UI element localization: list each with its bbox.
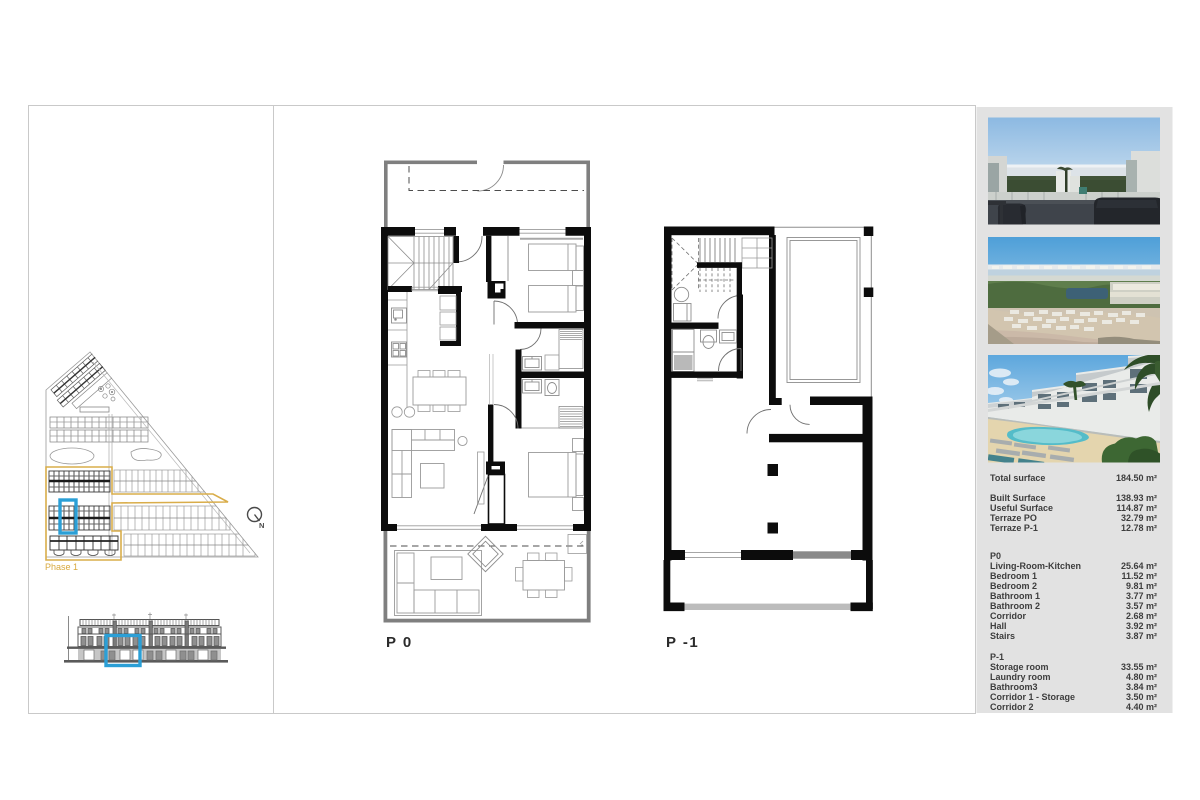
svg-text:3.84 m²: 3.84 m² [1126, 682, 1157, 692]
svg-text:Bathroom 1: Bathroom 1 [990, 591, 1040, 601]
svg-text:Living-Room-Kitchen: Living-Room-Kitchen [990, 561, 1081, 571]
svg-text:3.57 m²: 3.57 m² [1126, 601, 1157, 611]
svg-text:P 0: P 0 [386, 634, 413, 651]
svg-text:Total surface: Total surface [990, 473, 1045, 483]
svg-text:Corridor 2: Corridor 2 [990, 702, 1034, 712]
svg-text:Bedroom 2: Bedroom 2 [990, 581, 1037, 591]
svg-text:4.40 m²: 4.40 m² [1126, 702, 1157, 712]
svg-text:Bedroom 1: Bedroom 1 [990, 571, 1037, 581]
svg-text:Bathroom3: Bathroom3 [990, 682, 1038, 692]
svg-text:11.52 m²: 11.52 m² [1121, 571, 1157, 581]
svg-text:Bathroom 2: Bathroom 2 [990, 601, 1040, 611]
svg-text:32.79 m²: 32.79 m² [1121, 513, 1157, 523]
svg-text:4.80 m²: 4.80 m² [1126, 672, 1157, 682]
svg-text:Storage room: Storage room [990, 662, 1049, 672]
svg-text:P-1: P-1 [990, 652, 1004, 662]
svg-text:25.64 m²: 25.64 m² [1121, 561, 1157, 571]
svg-text:Laundry room: Laundry room [990, 672, 1051, 682]
svg-text:Corridor 1 - Storage: Corridor 1 - Storage [990, 692, 1075, 702]
svg-text:138.93 m²: 138.93 m² [1116, 493, 1157, 503]
svg-text:Terraze PO: Terraze PO [990, 513, 1037, 523]
svg-text:Stairs: Stairs [990, 631, 1015, 641]
svg-text:184.50 m²: 184.50 m² [1116, 473, 1157, 483]
svg-text:2.68 m²: 2.68 m² [1126, 611, 1157, 621]
svg-text:3.50 m²: 3.50 m² [1126, 692, 1157, 702]
svg-text:Built Surface: Built Surface [990, 493, 1046, 503]
svg-text:P0: P0 [990, 551, 1001, 561]
svg-text:12.78 m²: 12.78 m² [1121, 523, 1157, 533]
svg-text:Phase 1: Phase 1 [45, 562, 78, 572]
svg-text:3.92 m²: 3.92 m² [1126, 621, 1157, 631]
svg-text:9.81 m²: 9.81 m² [1126, 581, 1157, 591]
svg-text:114.87 m²: 114.87 m² [1116, 503, 1157, 513]
svg-text:N: N [259, 521, 264, 530]
svg-text:3.87 m²: 3.87 m² [1126, 631, 1157, 641]
svg-text:Terraze P-1: Terraze P-1 [990, 523, 1038, 533]
svg-text:Hall: Hall [990, 621, 1007, 631]
svg-text:Corridor: Corridor [990, 611, 1026, 621]
svg-text:Useful Surface: Useful Surface [990, 503, 1053, 513]
svg-text:3.77 m²: 3.77 m² [1126, 591, 1157, 601]
svg-text:33.55 m²: 33.55 m² [1121, 662, 1157, 672]
svg-text:P -1: P -1 [666, 634, 699, 651]
